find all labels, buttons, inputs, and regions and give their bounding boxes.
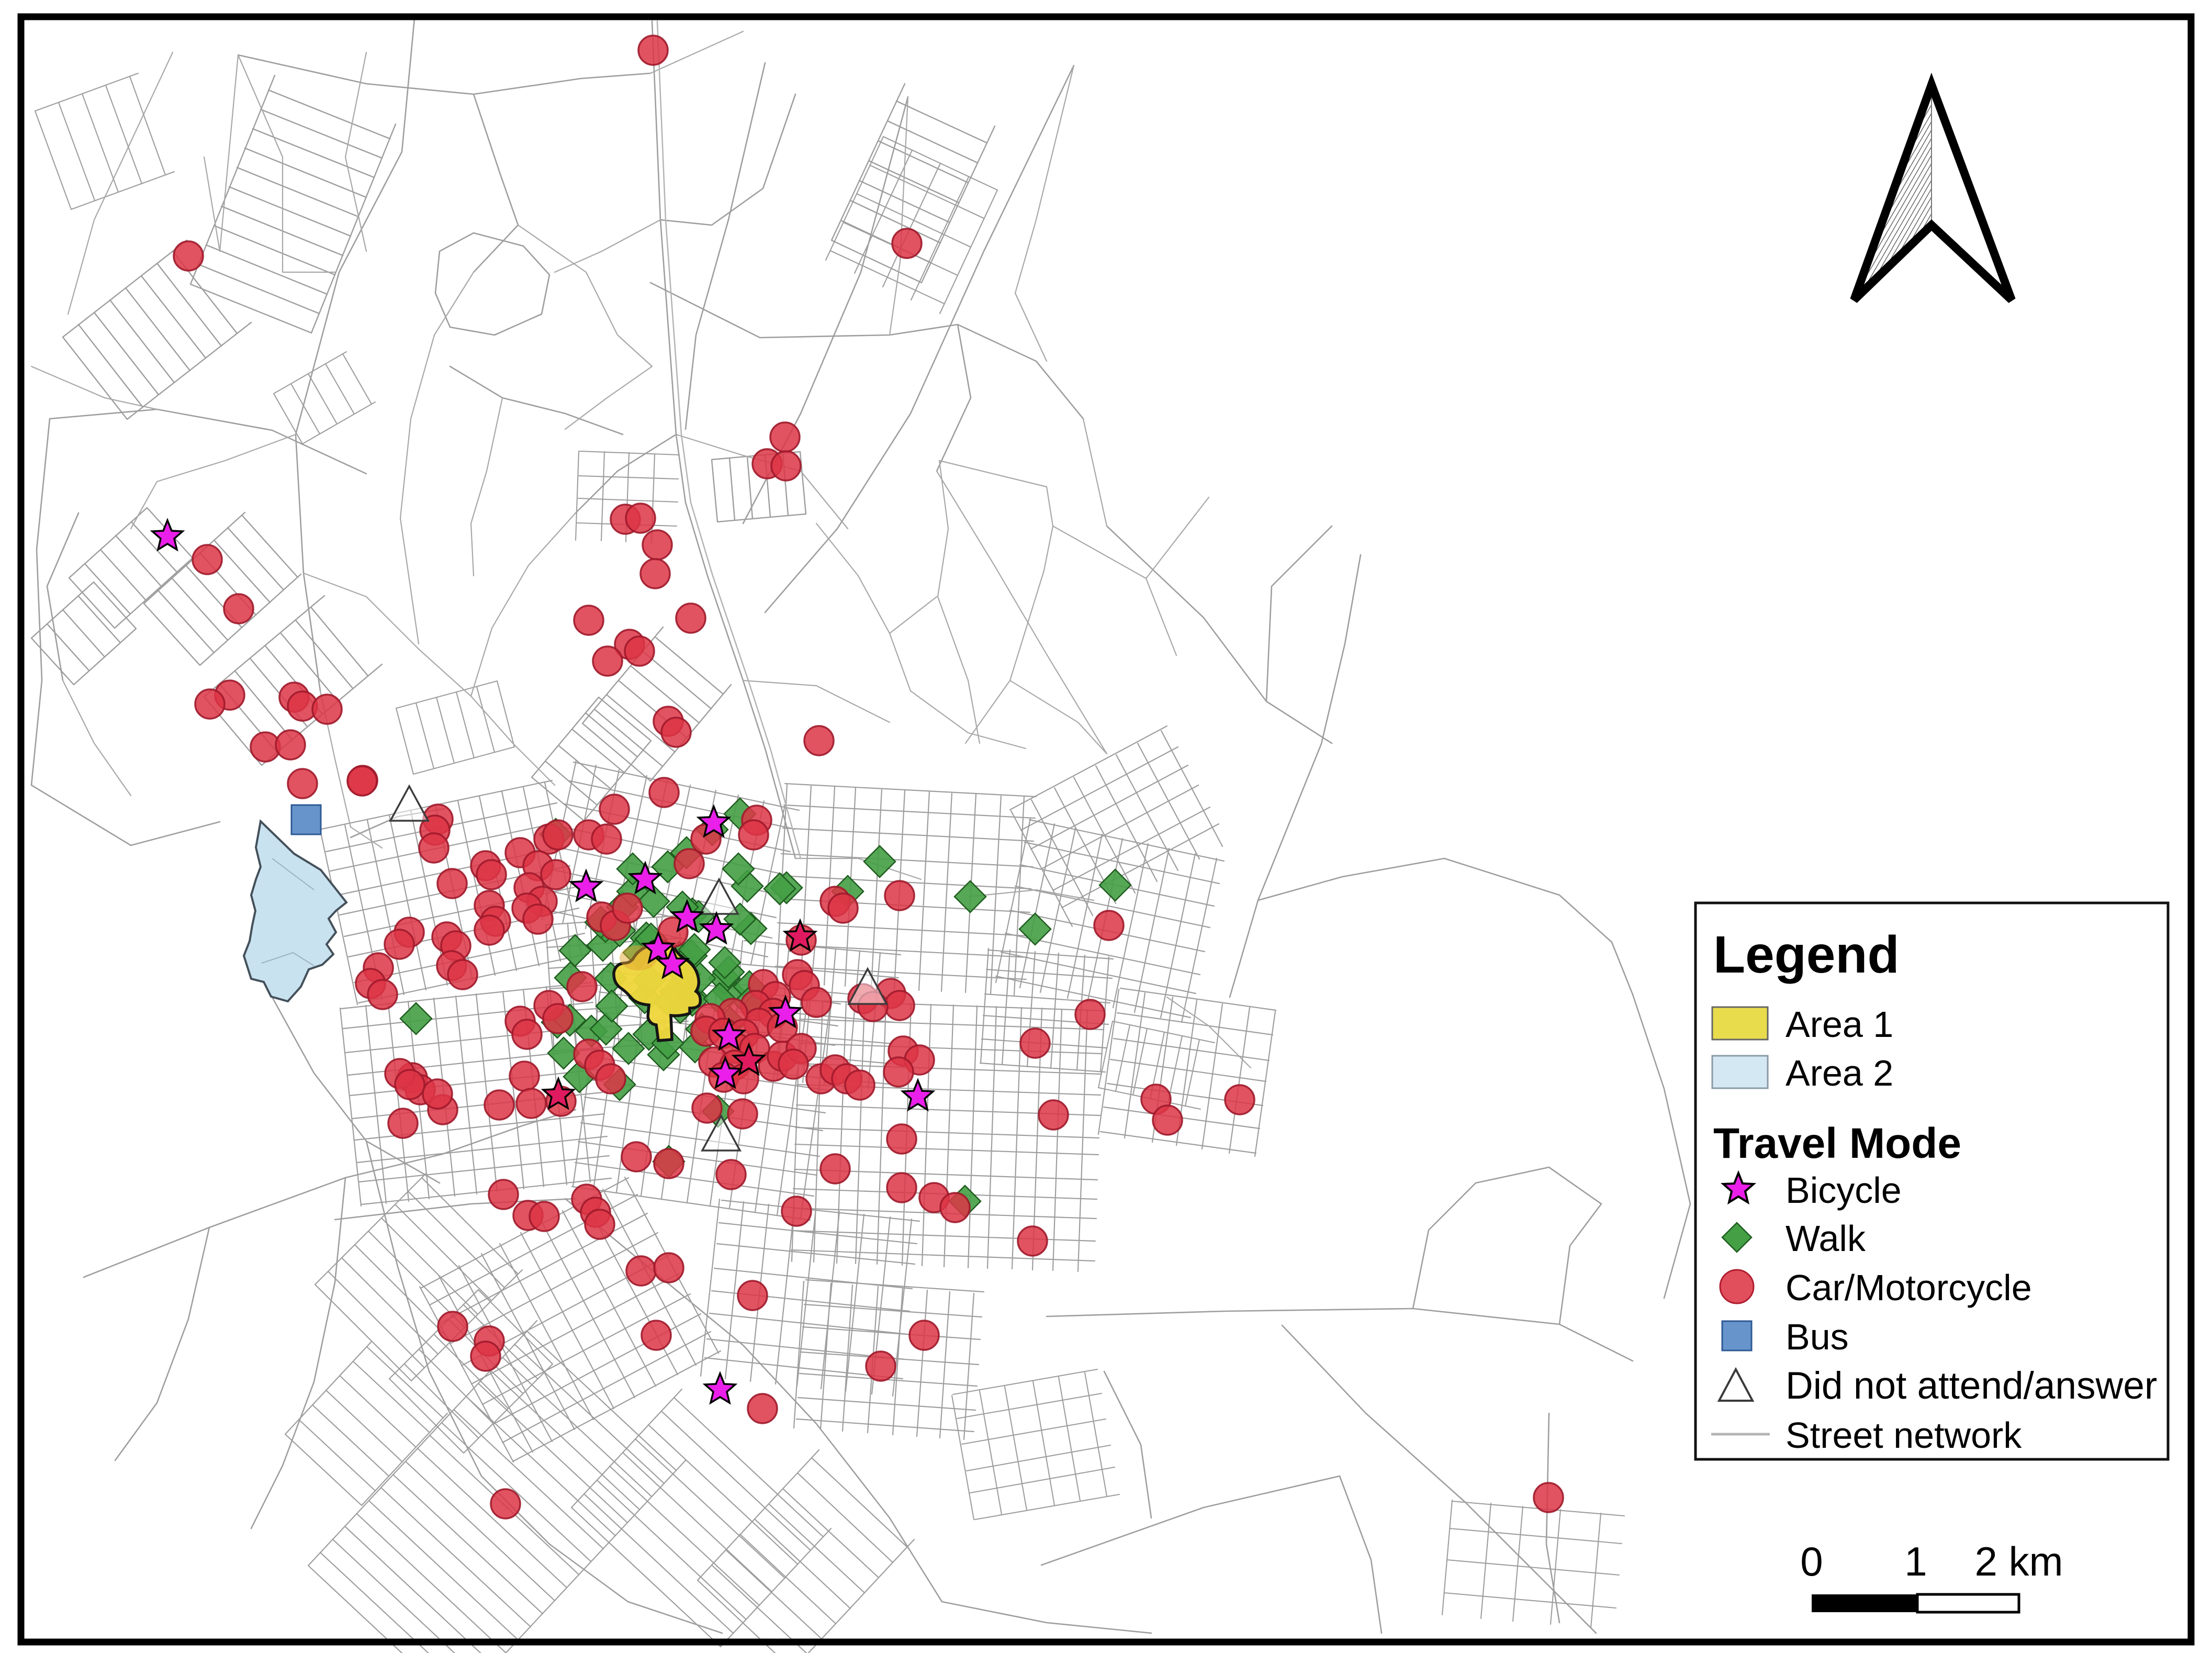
svg-text:1: 1 [1904, 1538, 1927, 1584]
svg-text:0: 0 [1800, 1538, 1823, 1584]
svg-text:Area 2: Area 2 [1786, 1053, 1893, 1093]
svg-text:Did not attend/answer: Did not attend/answer [1786, 1365, 2157, 1407]
svg-text:Travel Mode: Travel Mode [1713, 1120, 1961, 1167]
svg-text:Bicycle: Bicycle [1786, 1170, 1902, 1211]
svg-text:Legend: Legend [1713, 925, 1900, 984]
svg-text:Car/Motorcycle: Car/Motorcycle [1786, 1267, 2032, 1308]
svg-text:Area 1: Area 1 [1786, 1004, 1893, 1045]
svg-text:Walk: Walk [1786, 1218, 1866, 1259]
svg-text:Bus: Bus [1786, 1316, 1849, 1357]
svg-text:2 km: 2 km [1974, 1538, 2063, 1584]
svg-text:Street network: Street network [1786, 1415, 2022, 1456]
